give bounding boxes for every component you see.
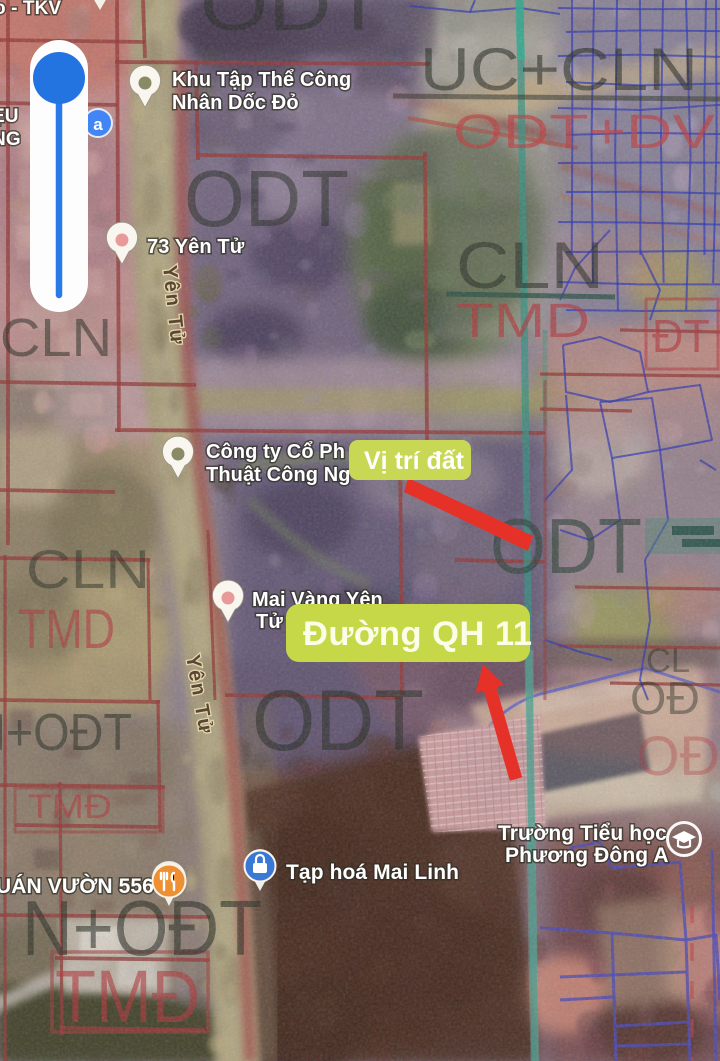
svg-text:UÁN VƯỜN 556: UÁN VƯỜN 556 — [0, 874, 154, 898]
svg-text:Tử: Tử — [256, 611, 283, 633]
svg-text:NG: NG — [0, 129, 21, 150]
svg-text:Thuật Công Ng: Thuật Công Ng — [206, 464, 351, 486]
svg-text:a: a — [93, 115, 103, 134]
svg-text:73 Yên Tử: 73 Yên Tử — [147, 236, 245, 258]
svg-text:Vị trí đất: Vị trí đất — [364, 447, 465, 475]
svg-text:Trường Tiểu học: Trường Tiểu học — [498, 822, 667, 845]
svg-text:Đường QH 11: Đường QH 11 — [303, 615, 532, 653]
svg-text:Công ty Cổ Ph: Công ty Cổ Ph — [206, 441, 345, 463]
svg-text:Tạp hoá Mai Linh: Tạp hoá Mai Linh — [286, 861, 459, 884]
svg-text:ẸU: ẸU — [0, 106, 19, 127]
svg-text:o - TKV: o - TKV — [0, 0, 61, 19]
svg-text:Nhân Dốc Đỏ: Nhân Dốc Đỏ — [172, 92, 299, 114]
svg-text:Khu Tập Thể Công: Khu Tập Thể Công — [172, 69, 351, 91]
svg-text:Phương Đông A: Phương Đông A — [505, 844, 669, 867]
